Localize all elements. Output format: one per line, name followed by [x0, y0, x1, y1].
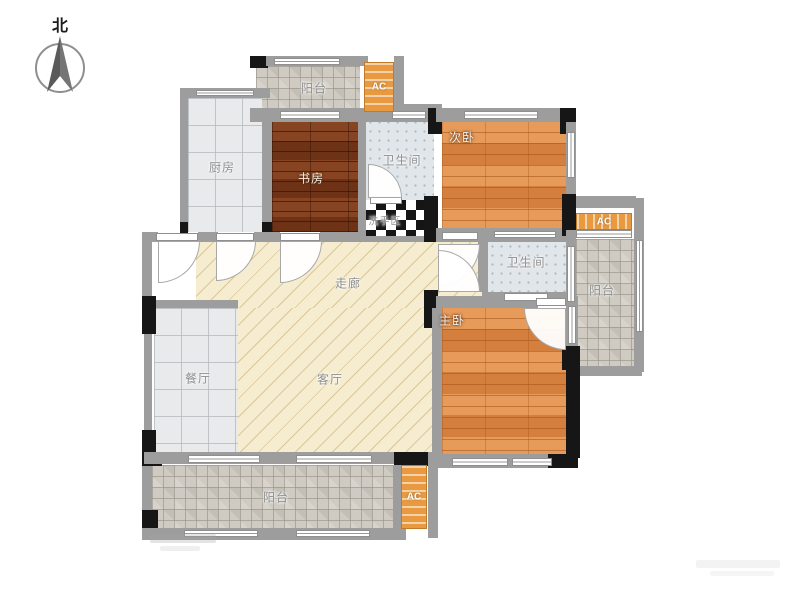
wall [142, 242, 152, 300]
door-panel [280, 233, 320, 241]
window [494, 231, 556, 238]
wall [432, 308, 442, 454]
ac-unit-top: AC [364, 62, 394, 112]
wall [144, 334, 152, 432]
window [188, 455, 260, 463]
window [568, 306, 576, 344]
wall [262, 122, 272, 232]
window [392, 111, 426, 119]
label-balcony-right: 阳台 [589, 282, 615, 299]
compass-north-label: 北 [52, 12, 68, 36]
watermark-right-line [710, 571, 774, 576]
label-dining: 餐厅 [185, 370, 211, 387]
wall [142, 300, 238, 308]
compass: 北 [28, 12, 92, 100]
label-bath-top: 卫生间 [382, 152, 421, 169]
door-panel [156, 233, 198, 241]
door-panel [216, 233, 254, 241]
label-balcony-bottom: 阳台 [263, 489, 289, 506]
wall [428, 458, 438, 538]
ac-unit-right: AC [576, 213, 632, 230]
wall [358, 122, 366, 232]
door-panel [442, 232, 478, 240]
window [452, 458, 508, 466]
wall [548, 454, 578, 468]
ac-top-label: AC [372, 82, 386, 93]
window [636, 240, 643, 332]
wall [320, 232, 366, 242]
label-bedroom-master: 主卧 [439, 312, 465, 329]
ac-right-label: AC [597, 216, 611, 227]
window [567, 132, 575, 178]
wall [566, 346, 580, 458]
watermark-left-line [160, 546, 200, 551]
label-study: 书房 [298, 170, 324, 187]
window [464, 111, 538, 119]
label-kitchen: 厨房 [209, 159, 235, 176]
wall [180, 96, 188, 232]
window [576, 230, 632, 238]
wall [142, 296, 156, 334]
ac-bottom-label: AC [407, 492, 421, 503]
wall [254, 232, 280, 242]
wall [570, 196, 636, 208]
wall [362, 236, 430, 242]
door-panel [536, 298, 566, 306]
label-bedroom-second: 次卧 [449, 129, 475, 146]
ac-unit-bottom: AC [401, 465, 427, 529]
label-living: 客厅 [317, 371, 343, 388]
wall [393, 465, 401, 529]
window [567, 246, 575, 302]
window [296, 455, 372, 463]
room-balcony-right [576, 239, 634, 366]
window [196, 90, 254, 96]
watermark-left [150, 534, 216, 543]
wall [198, 232, 218, 242]
floorplan-canvas: AC AC AC 阳台 厨房 书房 卫生间 洗手区 次卧 卫生间 阳台 走廊 餐… [0, 0, 800, 600]
window [512, 458, 552, 466]
door-arc-entry [158, 241, 200, 283]
window [296, 530, 370, 537]
label-wash-area: 洗手区 [369, 213, 402, 228]
wall [394, 452, 428, 466]
window [274, 58, 340, 65]
wall [570, 366, 642, 376]
label-bath-mid: 卫生间 [506, 254, 545, 271]
watermark-right [696, 560, 780, 568]
label-balcony-top: 阳台 [301, 80, 327, 97]
window [280, 111, 340, 119]
label-corridor: 走廊 [335, 275, 361, 292]
